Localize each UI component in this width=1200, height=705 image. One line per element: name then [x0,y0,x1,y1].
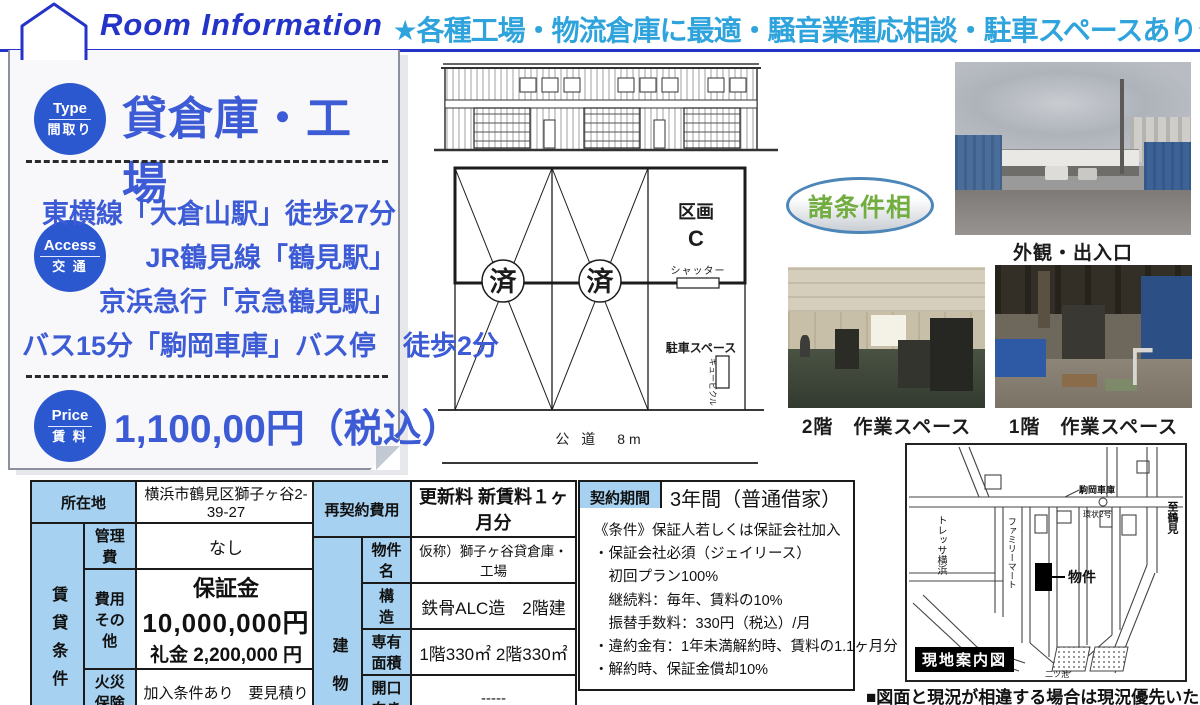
map-familymart-label: ファミリーマート [1005,517,1017,571]
house-icon [14,0,94,62]
access-line: 京浜急行「京急鶴見駅」 [22,280,396,324]
conditions-badge: 諸条件相 [786,177,934,234]
page-title: Room Information [100,7,396,47]
property-name-label: 物件名 [362,537,411,583]
price-badge-en: Price [48,407,93,427]
site-map: 駒岡車庫 環状2号 至鶴見 トレッサ横浜 ファミリーマート 物件 二ツ池 現地案… [905,443,1187,682]
price-badge-ja: 賃 料 [52,427,88,445]
lease-vertical-header: 賃貸条件 [31,523,84,705]
key-money: 礼金 2,200,000 円 [140,640,312,667]
photo-floor1 [995,265,1192,408]
condition-line: 振替手数料：330円（税込）/月 [594,613,845,636]
photo-floor2 [788,267,985,408]
warehouse-building [1002,149,1139,177]
divider-2 [26,375,388,378]
plan-sold-mark-2: 済 [587,266,615,297]
plan-sold-mark-1: 済 [490,266,518,297]
map-to-tsurumi-label: 至鶴見 [1164,501,1180,534]
ceiling [788,267,985,312]
location-value: 横浜市鶴見区獅子ヶ谷2-39-27 [136,481,316,523]
blue-tarp [1141,276,1192,370]
hoist [1038,271,1050,328]
other-costs-label: 費用その他 [84,569,137,669]
plan-cubicle-label: キュービクル [708,358,717,406]
condition-line: ・違約金有：1年未満解約時、賃料の1.1ヶ月分 [594,636,845,659]
footer-note: ■図面と現況が相違する場合は現況優先いたします。 [866,683,1200,705]
structure-value: 鉄骨ALC造 2階建 [411,583,576,629]
type-badge-en: Type [49,100,91,120]
facing-label: 開口向き [362,675,411,705]
renewal-label: 再契約費用 [313,481,411,537]
guarantor-conditions: 《条件》保証人若しくは保証会社加入 ・保証会社必須（ジェイリース） 初回プラン1… [578,508,855,691]
access-line: 東横線「大倉山駅」徒歩27分 [22,192,396,236]
header-banner: ★各種工場・物流倉庫に最適・騒音業種応相談・駐車スペースあり★ [416,7,1197,50]
facing-value: ----- [411,675,576,705]
plan-road-label: 公 道 8m [555,431,644,447]
access-lines: 東横線「大倉山駅」徒歩27分 JR鶴見線「鶴見駅」 京浜急行「京急鶴見駅」 バス… [22,192,396,368]
mgmt-fee-label: 管理費 [84,523,137,569]
road [955,190,1191,235]
condition-line: 継続料：毎年、賃料の10% [594,590,845,613]
plan-shutter-label: シャッター [671,265,726,277]
car [1045,166,1069,180]
condition-line: 初回プラン100% [594,566,845,589]
area-label: 専有面積 [362,629,411,675]
renewal-value: 更新料 新賃料１ヶ月分 [411,481,576,537]
floorplan-drawing: 区画 C シャッター 駐車スペース キュービクル 済 済 公 道 8m [432,56,780,470]
photo-exterior-caption: 外観・出入口 [955,238,1191,265]
map-title: 現地案内図 [915,647,1014,672]
photo-floor2-caption: 2階 作業スペース [788,412,985,439]
pallet [1062,374,1097,387]
building-table: 再契約費用 更新料 新賃料１ヶ月分 建物 物件名 仮称）獅子ヶ谷貸倉庫・工場 構… [312,480,577,705]
map-property-label: 物件 [1068,567,1096,587]
equipment [835,329,859,368]
page-fold-shadow [376,446,400,470]
lease-table: 所在地 横浜市鶴見区獅子ヶ谷2-39-27 賃貸条件 管理費 なし 費用その他 … [30,480,317,705]
map-streets [907,445,1185,680]
rent-price: 1,100,00円（税込） [114,398,398,454]
mgmt-fee-value: なし [136,523,316,569]
building-vertical-header: 建物 [313,537,362,705]
deposit-amount: 10,000,000円 [140,603,312,640]
car [1078,168,1097,180]
area-value: 1階330㎡ 2階330㎡ [411,629,576,675]
structure-label: 構 造 [362,583,411,629]
flyer-page: Room Information ★各種工場・物流倉庫に最適・騒音業種応相談・駐… [0,0,1200,705]
condition-line: ・保証会社必須（ジェイリース） [594,543,845,566]
plan-parking-label: 駐車スペース [666,340,737,355]
fire-insurance-label: 火災保険 [84,669,137,705]
utility-pole [1120,79,1124,174]
location-label: 所在地 [31,481,136,523]
map-bus-depot-label: 駒岡車庫 [1079,483,1115,496]
access-line: JR鶴見線「鶴見駅」 [22,236,396,280]
blue-bin [995,339,1046,376]
divider-1 [26,160,388,163]
access-line: バス15分「駒岡車庫」バス停 徒歩2分 [22,324,396,368]
map-tressa-label: トレッサ横浜 [933,515,948,575]
condition-line: 《条件》保証人若しくは保証会社加入 [594,520,845,543]
fan [800,335,810,358]
equipment [898,340,930,388]
type-badge-ja: 間取り [47,120,92,138]
map-route2-label: 環状2号 [1083,509,1111,520]
fire-insurance-value: 加入条件あり 要見積り [136,669,316,705]
other-costs-value: 保証金 10,000,000円 礼金 2,200,000 円 [136,569,316,669]
plan-section-letter: C [688,226,704,251]
plan-section-label: 区画 [678,202,714,222]
map-pond-label: 二ツ池 [1045,669,1069,680]
property-name-value: 仮称）獅子ヶ谷貸倉庫・工場 [411,537,576,583]
photo-exterior [955,62,1191,235]
condition-line: ・解約時、保証金償却10% [594,659,845,682]
machine [1062,305,1105,362]
equipment [930,318,973,391]
pallet [1105,379,1137,390]
type-badge: Type 間取り [34,83,106,155]
deposit-title: 保証金 [140,571,312,603]
price-badge: Price 賃 料 [34,390,106,462]
info-card: Type 間取り 貸倉庫・工場 Access 交 通 東横線「大倉山駅」徒歩27… [8,50,400,470]
photo-floor1-caption: 1階 作業スペース [995,412,1192,439]
